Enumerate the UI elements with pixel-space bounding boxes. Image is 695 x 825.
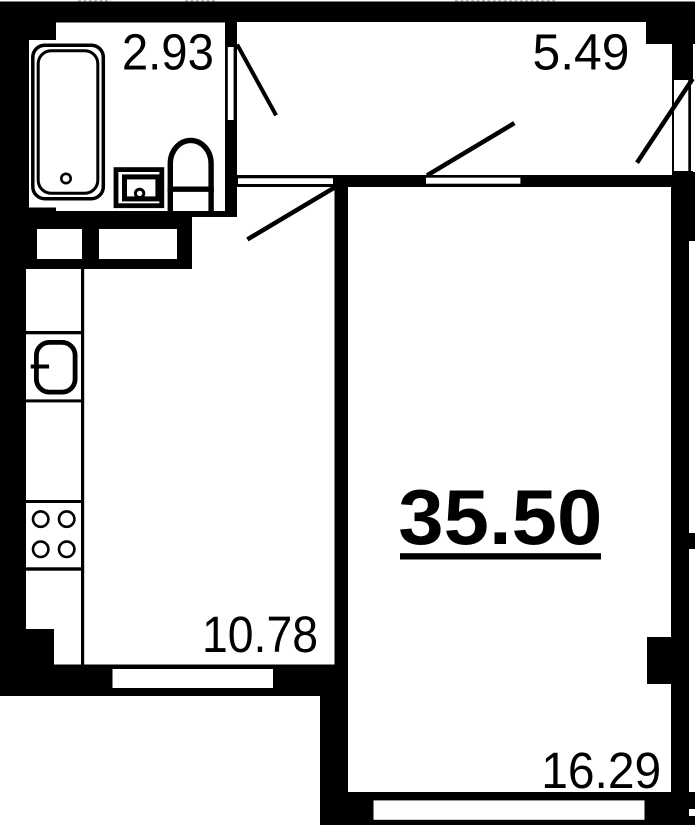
svg-text:2.93: 2.93	[122, 23, 214, 80]
svg-text:10.78: 10.78	[202, 606, 318, 663]
svg-text:35.50: 35.50	[398, 473, 602, 561]
svg-text:16.29: 16.29	[541, 742, 661, 799]
svg-text:5.49: 5.49	[533, 24, 630, 81]
